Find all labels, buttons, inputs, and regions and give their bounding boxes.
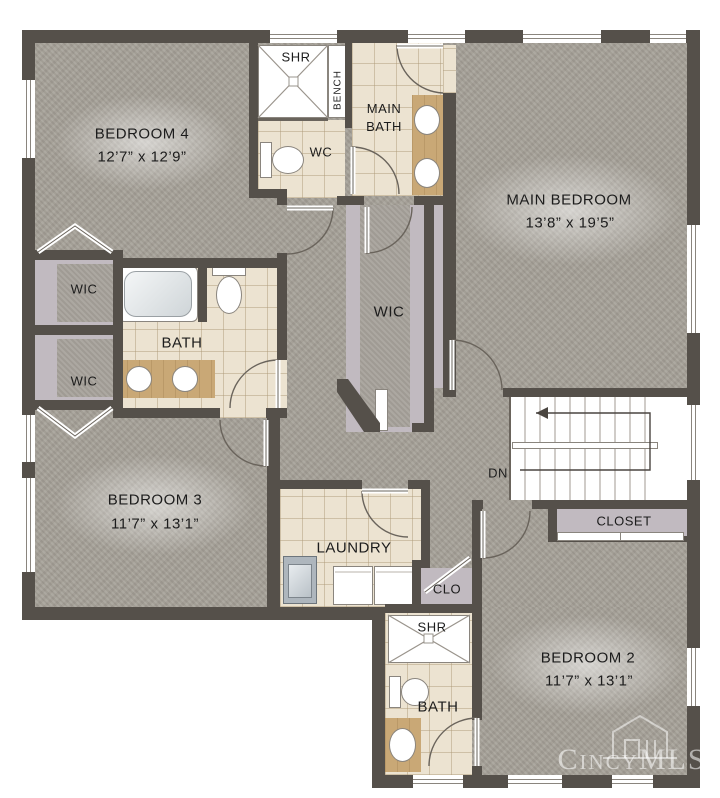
stairs-down-label: DN (488, 466, 508, 481)
dryer (374, 566, 414, 605)
hall-bath-label: BATH (162, 335, 203, 352)
bedroom2-dims: 11’7” x 13’1” (545, 673, 633, 690)
window (413, 775, 463, 788)
floor-plan: BEDROOM 4 12’7” x 12’9” SHR BENCH MAIN B… (0, 0, 720, 798)
window (22, 478, 35, 572)
main-bedroom-dims: 13’8” x 19’5” (525, 215, 614, 232)
window (408, 30, 465, 43)
closet-door-panel-2 (620, 532, 684, 541)
wic-upper-label: WIC (71, 282, 98, 297)
bench-label: BENCH (333, 70, 344, 110)
ensuite-shower-label: SHR (418, 620, 447, 635)
main-wic-door-leaf (375, 389, 388, 431)
hall-bath-sink-2 (172, 366, 198, 392)
window (650, 30, 686, 43)
ensuite-bath-label: BATH (418, 699, 459, 716)
closet-door-panel-1 (557, 532, 621, 541)
bedroom3-label: BEDROOM 3 (108, 492, 203, 509)
window (523, 30, 601, 43)
bedroom3-dims: 11’7” x 13’1” (111, 516, 199, 533)
window (687, 648, 700, 706)
stairs-handrail (512, 442, 658, 449)
main-bath-sink-2 (414, 158, 440, 188)
hall-bath-sink-1 (126, 366, 152, 392)
window (687, 225, 700, 333)
clo-label: CLO (433, 582, 461, 597)
bedroom4-dims: 12’7” x 12’9” (97, 149, 186, 166)
window (270, 30, 337, 43)
main-wic-label: WIC (374, 304, 405, 321)
window (22, 80, 35, 158)
washer (333, 566, 373, 605)
ensuite-sink (389, 728, 416, 762)
wic-lower-label: WIC (71, 374, 98, 389)
bedroom2-label: BEDROOM 2 (541, 650, 636, 667)
main-bath-sink-1 (414, 105, 440, 135)
main-bedroom-label: MAIN BEDROOM (506, 192, 631, 209)
window (22, 415, 35, 462)
wc-label: WC (310, 145, 333, 160)
window (508, 775, 562, 788)
wc-toilet-bowl (272, 146, 304, 174)
main-shower-label: SHR (282, 50, 311, 65)
window (687, 405, 700, 480)
laundry-label: LAUNDRY (317, 540, 392, 557)
bedroom2-closet-label: CLOSET (596, 514, 651, 529)
wc-toilet-tank (260, 142, 272, 178)
main-bath-label: MAIN BATH (356, 100, 412, 136)
cincymls-watermark: CincyMLS (557, 743, 706, 777)
bedroom4-label: BEDROOM 4 (95, 126, 190, 143)
hall-bath-toilet-bowl (216, 276, 242, 314)
ensuite-toilet-tank (389, 676, 401, 708)
